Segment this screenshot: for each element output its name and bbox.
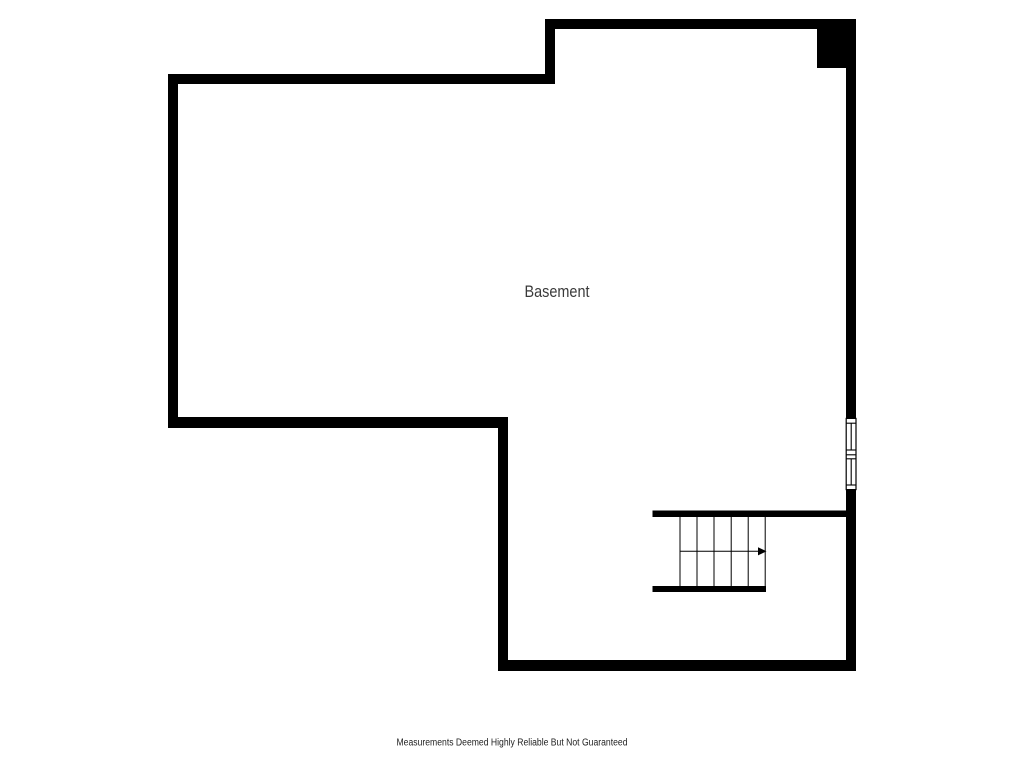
svg-text:Measurements Deemed Highly Rel: Measurements Deemed Highly Reliable But … [397,738,628,749]
svg-text:Basement: Basement [525,282,590,301]
